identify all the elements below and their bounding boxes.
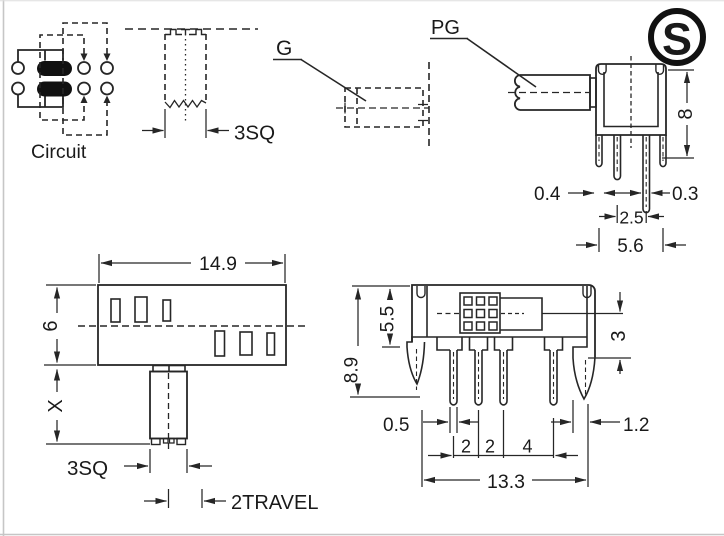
- dim-label-0-3: 0.3: [672, 184, 698, 205]
- dim-label-5-5: 5.5: [378, 306, 399, 332]
- arrowhead-down: [81, 54, 88, 62]
- dim-label-2b: 2: [485, 437, 495, 457]
- pin-buttress: [545, 337, 563, 350]
- mount-tab: [417, 286, 425, 298]
- inner-chamber: [500, 298, 542, 330]
- slot: [267, 333, 275, 355]
- terminal-circle: [12, 62, 24, 74]
- arrowhead-up: [104, 96, 111, 104]
- dim-label-6: 6: [40, 320, 62, 331]
- front-view: 14.9 6 X 3SQ 2TRAVEL: [40, 253, 318, 514]
- terminal-circle: [101, 62, 113, 74]
- pg-leader-line: [467, 39, 536, 88]
- terminal-circle: [78, 62, 90, 74]
- dim-label-14-9: 14.9: [199, 253, 237, 275]
- terminal-pin: [614, 135, 621, 180]
- terminal-circle: [12, 83, 24, 95]
- dim-label-13-3: 13.3: [487, 471, 525, 493]
- pin-buttress: [470, 337, 488, 350]
- body-corner-tab: [656, 65, 664, 75]
- slot: [163, 300, 171, 321]
- slot: [111, 299, 120, 322]
- dim-label-4: 4: [522, 437, 532, 457]
- body-top-outline: [412, 285, 595, 357]
- s-logo-letter: S: [662, 14, 692, 65]
- dim-label-8-9: 8.9: [342, 357, 363, 383]
- common-contact: [37, 82, 72, 97]
- pg-label: PG: [431, 17, 460, 39]
- s-logo: S: [651, 11, 703, 65]
- arrowhead-up: [81, 96, 88, 104]
- dim-label-8: 8: [675, 108, 697, 119]
- break-line: [165, 101, 206, 108]
- drawing-sheet: Circuit 3SQ G PG: [0, 0, 724, 536]
- slot: [240, 332, 252, 355]
- shaft-top-profile: [165, 30, 206, 35]
- dim-label-2-5: 2.5: [619, 208, 643, 228]
- slot: [215, 331, 225, 356]
- circuit-caption: Circuit: [31, 141, 87, 163]
- g-leader-line: [301, 60, 366, 102]
- right-clip-barb: [573, 357, 595, 399]
- left-clip-barb: [407, 342, 425, 384]
- terminal-circle: [78, 83, 90, 95]
- switch-path-outer: [63, 23, 107, 135]
- contact-grid-holes: [464, 297, 497, 330]
- circuit-diagram: Circuit: [12, 23, 113, 163]
- terminal-circle: [101, 83, 113, 95]
- dim-label-x: X: [45, 399, 67, 412]
- g-grease-detail: G: [273, 37, 429, 150]
- pin-buttress: [437, 337, 462, 350]
- dim-label-0-5: 0.5: [383, 415, 409, 436]
- switch-drawing-svg: Circuit 3SQ G PG: [0, 0, 724, 536]
- dim-label-0-4: 0.4: [534, 184, 561, 205]
- contact-grid-frame: [460, 293, 500, 333]
- slot: [135, 297, 147, 322]
- dim-label-3sq-bottom: 3SQ: [67, 457, 108, 480]
- dim-label-2a: 2: [461, 437, 471, 457]
- right-clip-step: [573, 337, 587, 358]
- dim-label-1-2: 1.2: [623, 415, 649, 436]
- pin-buttress: [495, 337, 513, 350]
- bottom-rear-view: 8.9 5.5 3 0.5 1.2 2 2 4: [342, 285, 650, 493]
- body-outline: [98, 285, 286, 365]
- dim-label-2travel: 2TRAVEL: [231, 492, 318, 514]
- g-label: G: [276, 37, 292, 60]
- body-corner-tab: [599, 65, 607, 75]
- common-contact: [37, 61, 72, 76]
- arrowhead-down: [104, 54, 111, 62]
- dim-label-3: 3: [608, 330, 630, 341]
- knob-shaft-hidden-view: 3SQ: [125, 29, 275, 145]
- dim-label-3sq-top: 3SQ: [234, 122, 275, 145]
- dim-label-5-6: 5.6: [617, 236, 643, 257]
